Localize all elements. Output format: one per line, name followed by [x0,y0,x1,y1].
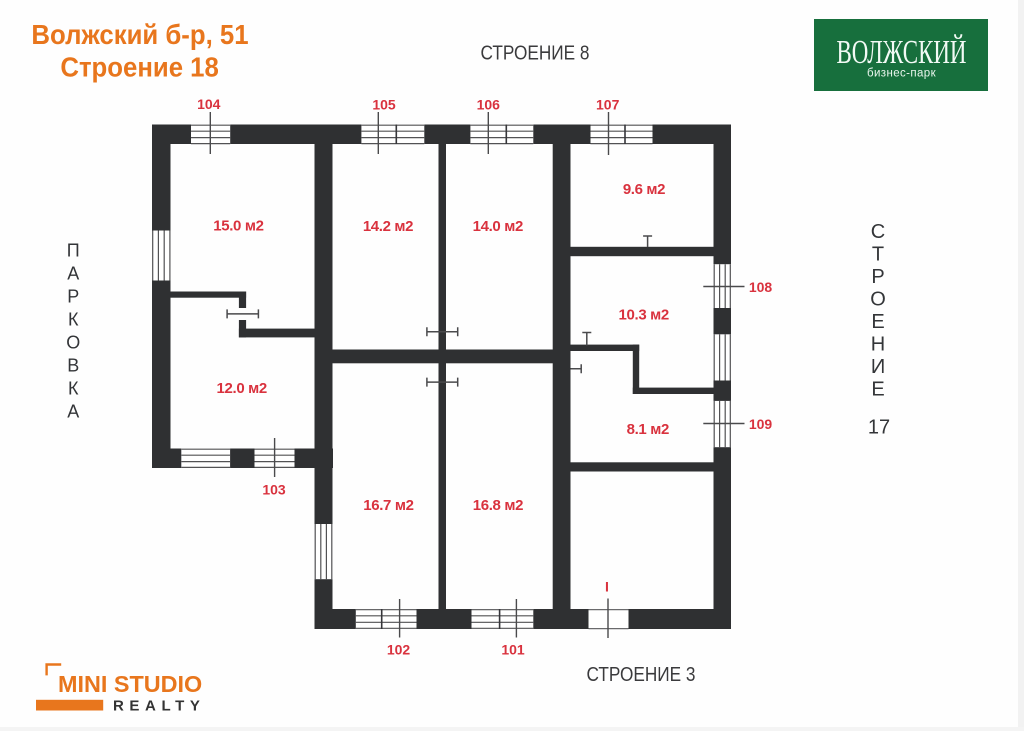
svg-text:17: 17 [868,417,890,439]
svg-text:10.3 м2: 10.3 м2 [619,307,669,324]
svg-text:106: 106 [477,96,501,112]
svg-text:107: 107 [596,97,620,113]
svg-text:102: 102 [387,642,411,658]
svg-text:А: А [67,264,79,284]
svg-text:Р: Р [871,266,884,288]
svg-text:бизнес-парк: бизнес-парк [867,68,937,80]
svg-text:14.0 м2: 14.0 м2 [473,218,523,235]
svg-text:101: 101 [501,642,525,658]
svg-text:9.6 м2: 9.6 м2 [623,181,665,198]
svg-text:Е: Е [871,379,884,401]
svg-text:К: К [68,379,79,399]
svg-text:А: А [67,402,79,422]
svg-text:105: 105 [372,96,396,112]
svg-text:Е: Е [871,311,884,333]
svg-text:Т: Т [872,244,884,266]
svg-text:СТРОЕНИЕ 3: СТРОЕНИЕ 3 [587,664,696,687]
svg-text:К: К [68,310,79,330]
svg-text:И: И [871,356,885,378]
svg-text:15.0 м2: 15.0 м2 [213,217,263,234]
svg-text:О: О [66,333,80,353]
svg-text:16.7 м2: 16.7 м2 [363,497,413,514]
svg-text:16.8 м2: 16.8 м2 [473,497,523,514]
svg-text:ВОЛЖСКИЙ: ВОЛЖСКИЙ [836,34,966,72]
svg-text:I: I [605,579,609,595]
svg-text:Строение 18: Строение 18 [60,51,219,82]
svg-text:П: П [67,241,80,261]
svg-text:О: О [870,289,886,311]
svg-text:Н: Н [871,334,885,356]
svg-text:108: 108 [749,279,773,295]
svg-text:104: 104 [197,96,221,112]
svg-text:12.0 м2: 12.0 м2 [217,380,267,397]
svg-text:С: С [871,221,885,243]
svg-text:103: 103 [262,482,286,498]
svg-text:MINI STUDIO: MINI STUDIO [58,671,202,697]
svg-text:Волжский б-р, 51: Волжский б-р, 51 [31,19,248,50]
svg-text:8.1 м2: 8.1 м2 [627,421,669,438]
svg-text:109: 109 [749,416,773,432]
svg-text:СТРОЕНИЕ 8: СТРОЕНИЕ 8 [481,42,590,65]
svg-text:14.2 м2: 14.2 м2 [363,218,413,235]
svg-text:Р: Р [67,287,79,307]
svg-text:REALTY: REALTY [113,698,206,715]
svg-text:В: В [67,356,79,376]
